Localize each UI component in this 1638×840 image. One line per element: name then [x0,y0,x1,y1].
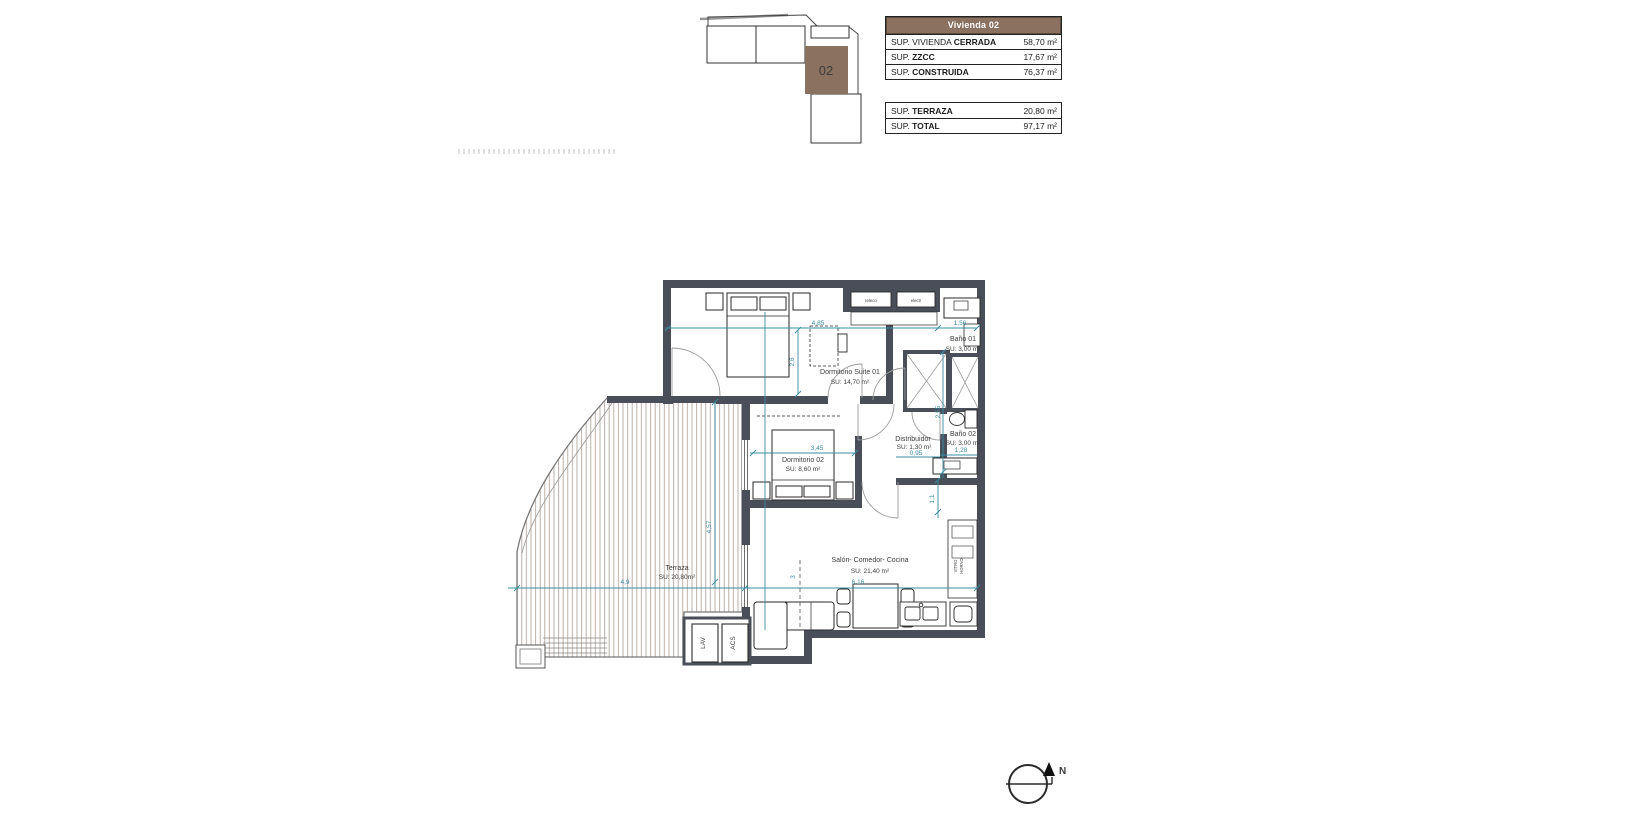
north-label: N [1059,766,1066,777]
nightstand [706,293,723,310]
bano1-sink-bowl [954,301,968,310]
window-gap [742,440,750,490]
horno-label: HORNO [959,557,964,573]
dorm2-bed [753,430,853,500]
room-label-dorm2: Dormitorio 02 [782,457,824,464]
room-label-salon: Salón- Comedor- Cocina [831,557,908,564]
bano2-sink-bowl [944,461,960,469]
dim-terraza-height: 4,57 [706,520,713,533]
row-label: SUP. CONSTRUIDA [891,67,969,77]
electr-label: electr [911,298,922,303]
wall-suite-bottom-c [860,396,893,404]
wall-dorm2-right [855,436,862,508]
wall-bottom-left [748,656,810,664]
dim-bano2-width: 1,28 [955,447,968,454]
dim-terraza-width: 4,9 [620,579,629,586]
bano2-shower [950,355,980,410]
summary-table-totals: SUP. TERRAZA 20,80 m² SUP. TOTAL 97,17 m… [885,102,1062,134]
row-label: SUP. TERRAZA [891,106,953,116]
bano1-shower [905,352,948,410]
table-row: SUP. TERRAZA 20,80 m² [886,103,1061,118]
table-row: SUP. CONSTRUIDA 76,37 m² [886,64,1061,79]
dim-salon-width: 6,16 [852,579,865,586]
key-plan-unit-a [707,26,756,63]
dim-salon-height: 3 [790,575,797,579]
lav-label: LAV [700,636,707,648]
room-label-bano1: Baño 01 [950,336,976,343]
wall-bottom-right [810,630,985,638]
room-area-terraza: SU: 20,80m² [659,574,696,581]
row-value: 58,70 m² [1023,37,1057,47]
lav-acs-niche [684,618,750,664]
room-area-dorm2: SU: 8,60 m² [786,466,822,473]
key-plan: 02 [700,15,861,143]
key-plan-unit-b [756,26,805,63]
north-symbol: N [1006,762,1066,803]
dim-kitchen-height: 1,1 [929,494,936,503]
wall-suite-bottom-a [663,396,673,404]
dim-distrib-width: 0,95 [910,450,923,457]
dim-suite-width: 4,85 [812,320,825,327]
wall-bano2-salon [896,478,985,485]
summary-table-main: Vivienda 02 SUP. VIVIENDA CERRADA 58,70 … [885,16,1062,80]
nightstand [753,482,770,499]
room-area-salon: SU: 21,40 m² [851,568,890,575]
row-value: 76,37 m² [1023,67,1057,77]
row-label: SUP. TOTAL [891,121,940,131]
room-area-bano1: SU: 3,00 m² [946,346,982,353]
summary-table-header: Vivienda 02 [886,17,1061,34]
row-value: 97,17 m² [1023,121,1057,131]
vitro-label: VITRO [953,559,958,573]
row-label: SUP. ZZCC [891,52,935,62]
wall-top [663,280,985,288]
plan-sheet: 02 [0,0,1638,840]
row-label: SUP. VIVIENDA CERRADA [891,37,996,47]
dorm2-door [858,404,894,440]
terraza-planter-inner [520,649,541,664]
dim-dorm2-width: 3,45 [811,445,824,452]
nightstand [836,482,853,499]
room-label-suite: Dormitorio Suite 01 [820,369,880,376]
teleco-label: teleco [865,298,877,303]
shaft-cabinet [851,312,937,325]
suite-terraza-door [672,348,720,396]
dim-bano1-width: 1,56 [954,320,967,327]
toilet [950,410,978,428]
dim-suite-height: 2,6 [789,357,796,366]
room-area-distribuidor: SU: 1,30 m² [897,444,933,451]
room-label-terraza: Terraza [665,565,688,572]
suite-wardrobe [810,326,847,366]
kitchen-appliance [950,602,977,626]
room-area-suite: SU: 14,70 m² [831,379,870,386]
chair [837,589,850,604]
table-row: SUP. ZZCC 17,67 m² [886,49,1061,64]
sofa [754,602,834,649]
row-value: 17,67 m² [1023,52,1057,62]
dim-banos-height: 2,55 [935,405,942,418]
north-arrow-icon [1043,762,1055,776]
room-label-bano2: Baño 02 [950,431,976,438]
faint-watermark-text [458,149,618,154]
door-gap [742,545,750,607]
nightstand [793,293,810,310]
room-area-bano2: SU: 3,00 m² [946,440,982,447]
wall-left [663,280,671,404]
key-plan-unit-label: 02 [819,63,833,78]
plan-canvas: 02 [0,0,1638,840]
wall-dorm2-bottom [750,500,862,508]
table-row: SUP. VIVIENDA CERRADA 58,70 m² [886,34,1061,49]
room-label-distribuidor: Distribuidor [895,436,931,443]
key-plan-unit-d [811,94,861,143]
chair [837,612,850,627]
acs-label: ACS [730,636,737,650]
table-row: SUP. TOTAL 97,17 m² [886,118,1061,133]
wall-suite-bottom-b [716,396,828,404]
key-plan-unit-c [811,26,849,38]
row-value: 20,80 m² [1023,106,1057,116]
kitchen-sink [900,602,946,626]
salon-door [862,482,898,518]
